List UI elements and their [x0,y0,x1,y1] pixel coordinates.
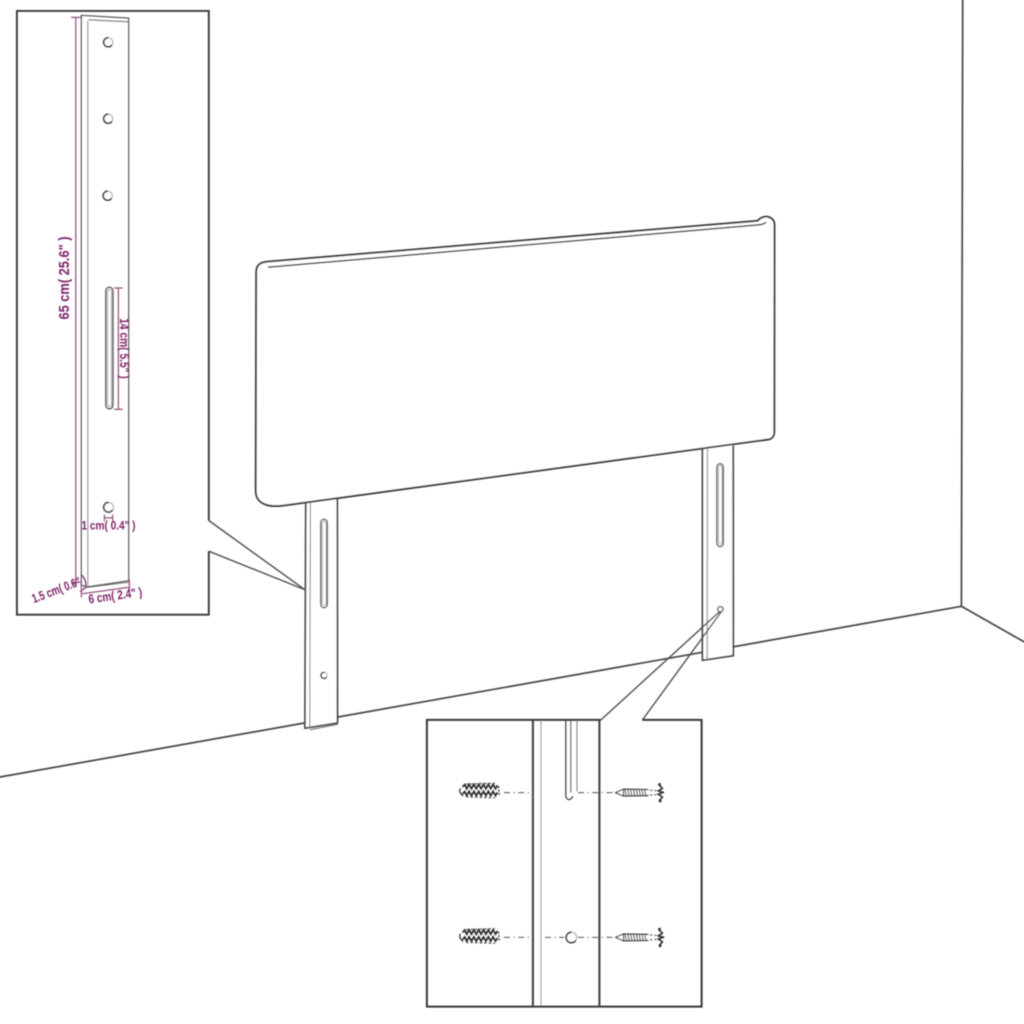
svg-text:65 cm( 25.6" ): 65 cm( 25.6" ) [56,237,73,320]
svg-text:14 cm( 5.5" ): 14 cm( 5.5" ) [117,318,131,379]
svg-text:1 cm( 0.4" ): 1 cm( 0.4" ) [82,519,136,533]
